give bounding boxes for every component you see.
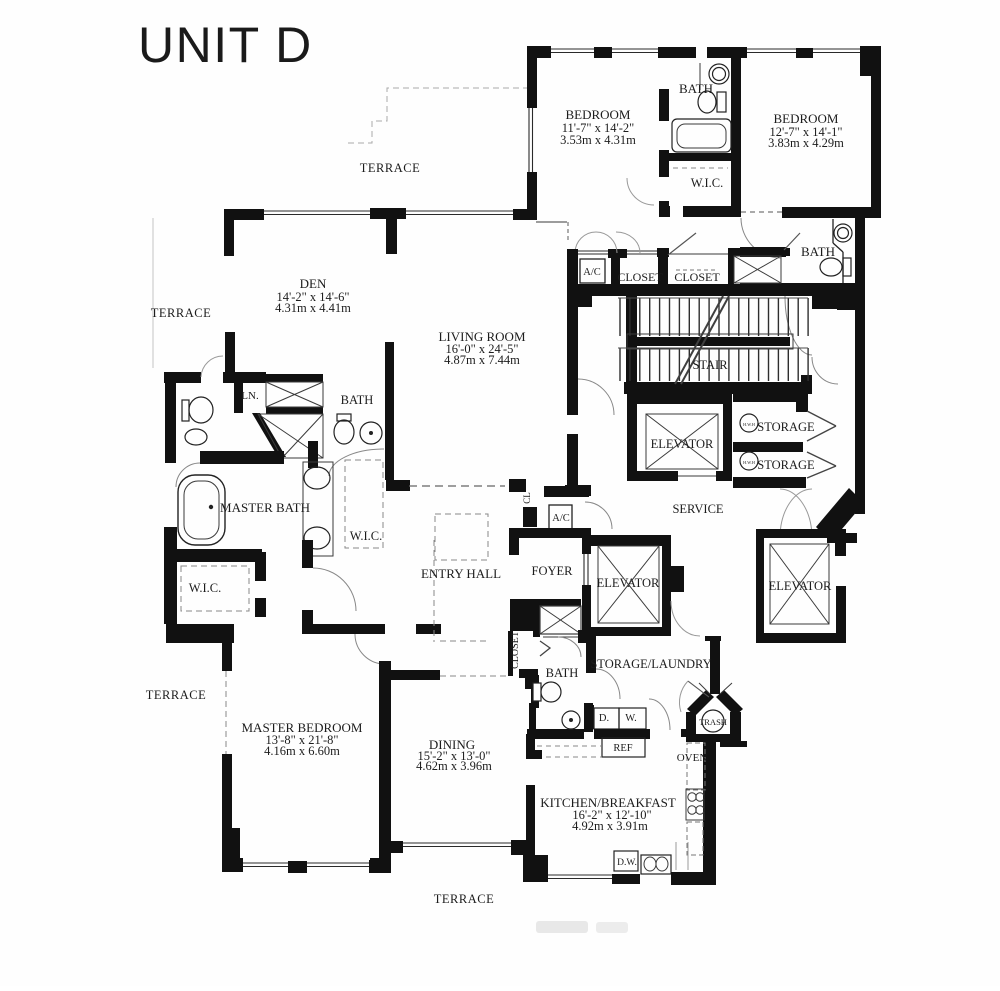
svg-text:REF: REF xyxy=(613,743,632,754)
svg-text:ELEVATOR: ELEVATOR xyxy=(651,437,714,451)
svg-text:D.W.: D.W. xyxy=(617,858,637,868)
svg-text:4.16m x 6.60m: 4.16m x 6.60m xyxy=(264,744,340,758)
svg-text:4.62m x 3.96m: 4.62m x 3.96m xyxy=(416,759,492,773)
svg-text:4.92m x 3.91m: 4.92m x 3.91m xyxy=(572,819,648,833)
svg-text:UNIT D: UNIT D xyxy=(138,17,313,73)
svg-text:LN.: LN. xyxy=(241,390,259,402)
svg-text:BATH: BATH xyxy=(341,393,374,407)
svg-text:W.I.C.: W.I.C. xyxy=(691,176,724,190)
svg-text:MASTER BATH: MASTER BATH xyxy=(220,500,310,515)
svg-text:3.83m x 4.29m: 3.83m x 4.29m xyxy=(768,136,844,150)
svg-text:DEN: DEN xyxy=(300,276,327,291)
svg-text:STORAGE/LAUNDRY: STORAGE/LAUNDRY xyxy=(590,657,711,671)
svg-text:W.I.C.: W.I.C. xyxy=(350,529,383,543)
svg-text:TERRACE: TERRACE xyxy=(151,306,211,320)
svg-text:A/C: A/C xyxy=(552,513,570,524)
svg-text:BEDROOM: BEDROOM xyxy=(773,111,838,126)
svg-text:ENTRY HALL: ENTRY HALL xyxy=(421,566,501,581)
svg-text:ELEVATOR: ELEVATOR xyxy=(597,576,660,590)
svg-text:TERRACE: TERRACE xyxy=(146,688,206,702)
svg-text:H.W.H: H.W.H xyxy=(743,460,755,465)
svg-text:BATH: BATH xyxy=(801,244,835,259)
svg-text:4.87m x 7.44m: 4.87m x 7.44m xyxy=(444,353,520,367)
svg-text:STORAGE: STORAGE xyxy=(757,420,815,434)
svg-text:CLOSET: CLOSET xyxy=(510,631,521,669)
svg-text:SERVICE: SERVICE xyxy=(672,502,723,516)
svg-text:ELEVATOR: ELEVATOR xyxy=(769,579,832,593)
svg-text:3.53m x 4.31m: 3.53m x 4.31m xyxy=(560,133,636,147)
svg-text:TERRACE: TERRACE xyxy=(434,892,494,906)
svg-text:BATH: BATH xyxy=(546,666,579,680)
svg-text:A/C: A/C xyxy=(583,267,601,278)
svg-text:TERRACE: TERRACE xyxy=(360,161,420,175)
svg-text:STAIR: STAIR xyxy=(692,358,728,372)
svg-text:CL: CL xyxy=(522,492,532,504)
svg-text:W.I.C.: W.I.C. xyxy=(189,581,222,595)
svg-text:H.W.H: H.W.H xyxy=(743,422,755,427)
svg-text:CLOSET: CLOSET xyxy=(674,270,720,284)
svg-text:OVEN: OVEN xyxy=(677,752,708,764)
svg-text:CLOSET: CLOSET xyxy=(617,270,663,284)
svg-text:FOYER: FOYER xyxy=(532,564,574,578)
svg-text:BEDROOM: BEDROOM xyxy=(565,107,630,122)
svg-text:W.: W. xyxy=(625,713,637,724)
svg-text:BATH: BATH xyxy=(679,81,713,96)
svg-text:STORAGE: STORAGE xyxy=(757,458,815,472)
svg-text:4.31m x 4.41m: 4.31m x 4.41m xyxy=(275,301,351,315)
svg-text:TRASH: TRASH xyxy=(699,717,727,727)
svg-text:D.: D. xyxy=(599,713,609,724)
